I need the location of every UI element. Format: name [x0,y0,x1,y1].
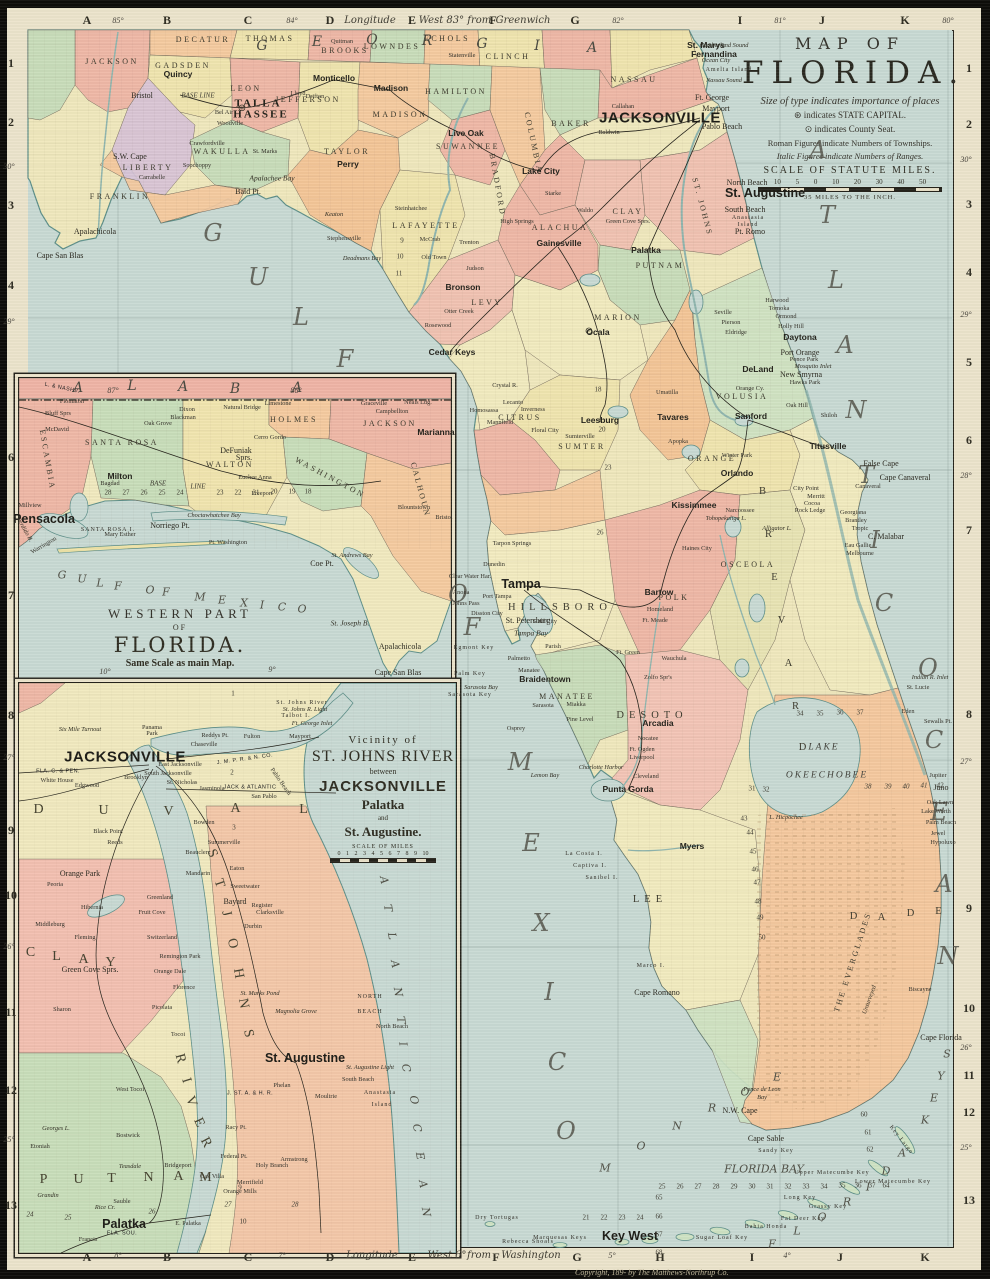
map-title: FLORIDA. [742,55,958,91]
stjohns-title-line5: Palatka [298,797,468,813]
scale-bar [758,187,942,192]
stjohns-title-line3: between [298,767,468,776]
stjohns-title-line4: JACKSONVILLE [298,778,468,795]
map-title-kicker: MAP OF [742,34,958,53]
stjohns-title-line1: Vicinity of [298,734,468,746]
copyright-line: Copyright, 189- by The Matthews-Northrup… [575,1268,729,1277]
stjohns-scale-title: SCALE OF MILES [298,844,468,850]
map-page: WESTERN PART OF FLORIDA. Same Scale as m… [0,0,990,1279]
stjohns-title-line6: and [298,814,468,822]
western-title-line1: WESTERN PART [90,606,270,622]
stjohns-title-line7: St. Augustine. [298,824,468,840]
western-title-line3: FLORIDA. [90,633,270,657]
stjohns-title-line2: ST. JOHNS RIVER [298,748,468,766]
stjohns-scale-bar [330,858,436,863]
scale-ticks: 10 5 0 10 20 30 40 50 [742,178,958,186]
western-title-line2: OF [90,623,270,632]
legend-state-capital: ⊛ indicates STATE CAPITAL. [742,110,958,121]
scale-note: 35 MILES TO THE INCH. [742,194,958,201]
western-inset-title: WESTERN PART OF FLORIDA. Same Scale as m… [90,606,270,669]
state-capital-icon: ⊛ [794,110,802,120]
note-ranges: Italic Figures indicate Numbers of Range… [742,151,958,161]
map-title-block: MAP OF FLORIDA. Size of type indicates i… [742,34,958,201]
map-subtitle: Size of type indicates importance of pla… [742,96,958,107]
stjohns-scale-ticks: 0 1 2 3 4 5 6 7 8 9 10 [298,851,468,857]
western-title-subtitle: Same Scale as main Map. [90,658,270,669]
note-townships: Roman Figures indicate Numbers of Townsh… [742,138,958,148]
scale-title: SCALE OF STATUTE MILES. [742,165,958,176]
stjohns-inset-title: Vicinity of ST. JOHNS RIVER between JACK… [298,734,468,863]
legend-county-seat: ⊙ indicates County Seat. [742,124,958,135]
county-seat-icon: ⊙ [805,124,813,134]
